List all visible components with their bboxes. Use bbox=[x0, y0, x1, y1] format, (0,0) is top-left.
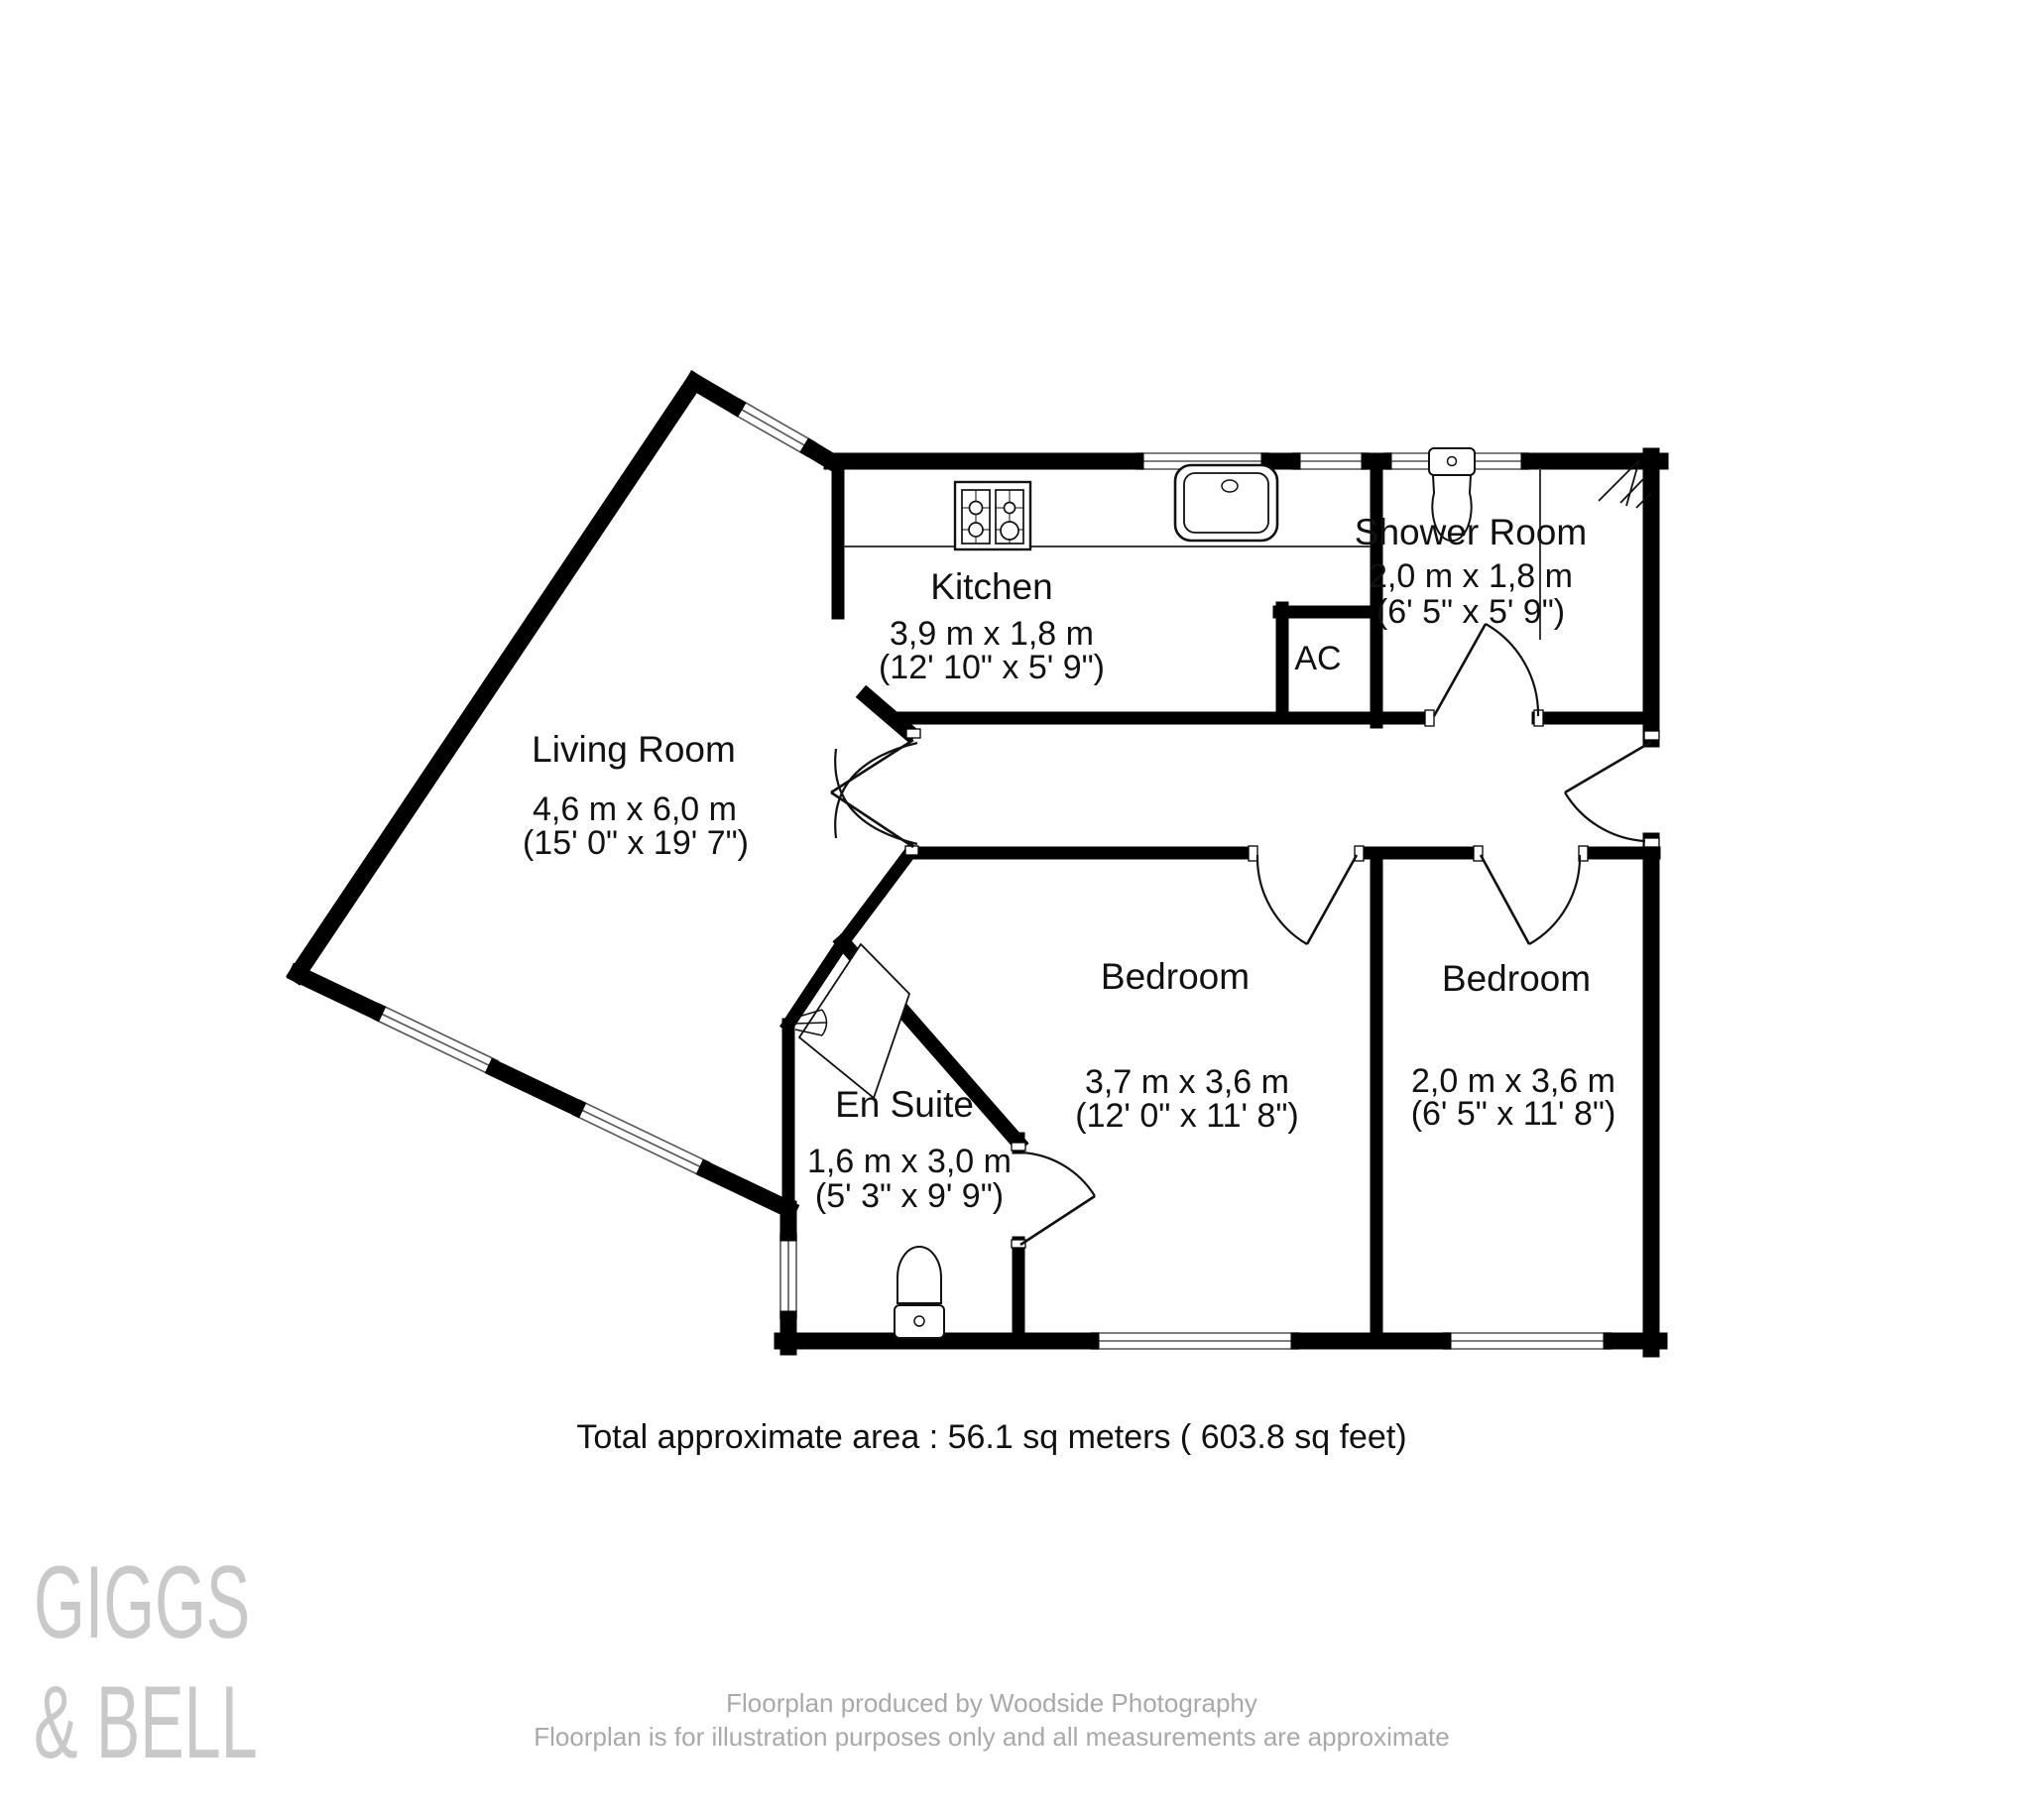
door-leaf bbox=[1020, 1196, 1095, 1245]
kitchen-metric: 3,9 m x 1,8 m bbox=[890, 615, 1094, 653]
floorplan-page: Living Room 4,6 m x 6,0 m (15' 0" x 19' … bbox=[0, 0, 2031, 1820]
shower-room-label: Shower Room bbox=[1355, 512, 1587, 552]
total-area-label: Total approximate area : 56.1 sq meters … bbox=[576, 1418, 1406, 1456]
door-arc bbox=[1020, 1153, 1095, 1196]
window bbox=[1292, 452, 1370, 470]
shower-room-metric: 2,0 m x 1,8 m bbox=[1369, 557, 1573, 595]
bedroom-1-door bbox=[1257, 855, 1357, 944]
living-room-double-door bbox=[831, 740, 917, 847]
en-suite-metric: 1,6 m x 3,0 m bbox=[807, 1143, 1012, 1180]
en-suite-door bbox=[1020, 1153, 1095, 1245]
wall-lrdoor-lower bbox=[843, 851, 911, 942]
footer-line1: Floorplan produced by Woodside Photograp… bbox=[534, 1686, 1449, 1720]
door-leaf bbox=[1481, 855, 1529, 944]
entrance-door bbox=[1565, 742, 1651, 841]
bedroom-1-metric: 3,7 m x 3,6 m bbox=[1085, 1063, 1289, 1101]
agency-logo-line1: GIGGS bbox=[34, 1543, 258, 1663]
agency-logo-line2: & BELL bbox=[34, 1663, 258, 1783]
window bbox=[1091, 1332, 1299, 1350]
shower-room-door bbox=[1434, 624, 1538, 716]
window bbox=[571, 1099, 710, 1178]
window bbox=[371, 1003, 500, 1077]
room-labels: Living Room 4,6 m x 6,0 m (15' 0" x 19' … bbox=[523, 512, 1615, 1215]
en-suite-label: En Suite bbox=[835, 1084, 974, 1125]
door-arc bbox=[835, 743, 917, 844]
door-leaf bbox=[1565, 742, 1651, 792]
shower-enclosure-icon bbox=[794, 944, 909, 1098]
wall-living-bottom bbox=[298, 974, 788, 1209]
agency-logo: GIGGS & BELL bbox=[34, 1543, 258, 1783]
hob-icon bbox=[955, 482, 1030, 549]
door-arc bbox=[1486, 624, 1538, 716]
living-room-metric: 4,6 m x 6,0 m bbox=[533, 790, 737, 828]
door-arc bbox=[1565, 792, 1645, 841]
toilet-icon bbox=[895, 1247, 944, 1338]
living-room-label: Living Room bbox=[532, 729, 736, 770]
door-leaf bbox=[1307, 855, 1357, 944]
bedroom-2-label: Bedroom bbox=[1442, 958, 1591, 999]
bedroom-2-door bbox=[1481, 855, 1580, 944]
living-room-imperial: (15' 0" x 19' 7") bbox=[523, 824, 749, 862]
door-arc bbox=[1257, 855, 1307, 944]
window bbox=[1443, 1332, 1612, 1350]
door-leaf bbox=[831, 740, 913, 847]
window bbox=[779, 1233, 797, 1319]
wall-living-left bbox=[298, 382, 694, 974]
kitchen-imperial: (12' 10" x 5' 9") bbox=[879, 649, 1105, 686]
bedroom-1-imperial: (12' 0" x 11' 8") bbox=[1075, 1097, 1298, 1135]
bedroom-2-imperial: (6' 5" x 11' 8") bbox=[1411, 1095, 1616, 1133]
ac-label: AC bbox=[1294, 640, 1341, 677]
sink-icon bbox=[1175, 465, 1277, 541]
footer-credits: Floorplan produced by Woodside Photograp… bbox=[534, 1686, 1449, 1754]
door-arc bbox=[1529, 855, 1580, 944]
shower-room-imperial: (6' 5" x 5' 9") bbox=[1376, 593, 1565, 631]
door-leaf bbox=[1434, 624, 1486, 716]
floorplan-drawing: Living Room 4,6 m x 6,0 m (15' 0" x 19' … bbox=[0, 0, 2031, 1820]
bedroom-1-label: Bedroom bbox=[1101, 956, 1250, 997]
kitchen-label: Kitchen bbox=[930, 566, 1052, 607]
footer-line2: Floorplan is for illustration purposes o… bbox=[534, 1720, 1449, 1754]
en-suite-imperial: (5' 3" x 9' 9") bbox=[815, 1177, 1004, 1215]
